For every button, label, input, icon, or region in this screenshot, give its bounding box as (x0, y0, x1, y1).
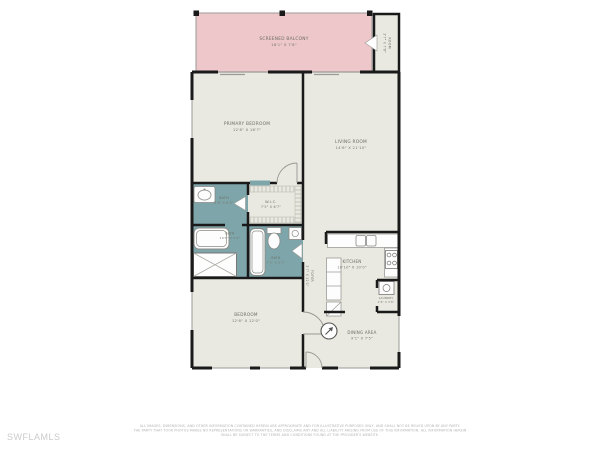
closet-shelves (295, 186, 301, 223)
stove-icon (386, 251, 398, 269)
closet-shelves (250, 186, 294, 192)
washer-icon (379, 282, 394, 295)
label-bath-tub-dims: 10'1" X 6'4" (220, 236, 241, 240)
label-foyer-dims: 3'7" X 12'1" (305, 265, 309, 287)
kitchen-counter (328, 234, 399, 248)
label-foyer-name: FOYER (310, 270, 314, 282)
label-bath-primary-name: BATH (219, 196, 229, 200)
bathtub-icon (250, 229, 265, 276)
disclaimer-line3: SHALL BE SUBJECT TO THE TERMS AND CONDIT… (221, 433, 379, 437)
floor-plan-svg: SCREENED BALCONY 18'1" X 7'8" ROOM 3'7" … (0, 0, 600, 449)
label-bath-tub-name: BATH (225, 232, 235, 236)
label-bedroom-dims: 12'6" X 12'0" (232, 318, 260, 323)
label-wic-name: W.I.C. (265, 200, 277, 204)
vanity-sink-icon (194, 187, 215, 203)
entry-marker-icon (321, 323, 337, 339)
disclaimer-line1: ALL IMAGES, DIMENSIONS, AND OTHER INFORM… (140, 424, 461, 428)
label-balcony-dims: 18'1" X 7'8" (271, 42, 297, 47)
floor-plan-page: SCREENED BALCONY 18'1" X 7'8" ROOM 3'7" … (0, 0, 600, 449)
closet-shelves (250, 217, 294, 223)
label-kitchen-name: KITCHEN (342, 259, 361, 264)
label-dining-name: DINING AREA (347, 330, 376, 335)
label-bath-guest-name: BATH (271, 256, 281, 260)
label-wic-dims: 7'5" X 6'7" (261, 205, 282, 209)
disclaimer-line2: THE PARTY THAT TOOK PHOTOS MAKES NO REPR… (133, 429, 467, 433)
label-bath-primary-dims: 5'6" X 8'5" (214, 201, 234, 205)
label-bath-guest-dims: 7'5" X 5'5" (267, 261, 286, 265)
label-side-room-dims: 3'7" X 7'8" (383, 33, 387, 53)
label-living-room-dims: 14'6" X 21'10" (335, 145, 366, 150)
label-primary-bedroom-dims: 12'8" X 16'7" (233, 127, 261, 132)
wall-post (194, 11, 200, 17)
wall-post (280, 11, 286, 17)
door-opening (250, 181, 270, 186)
label-bedroom-name: BEDROOM (234, 312, 258, 317)
wall-post (367, 11, 373, 17)
label-side-room-name: ROOM (388, 37, 392, 49)
toilet-icon (267, 228, 281, 250)
shower-icon (194, 253, 237, 277)
label-laundry-dims: 2'6" X 3'8" (378, 300, 395, 304)
label-laundry-name: LAUNDRY (379, 296, 394, 300)
label-dining-dims: 9'1" X 7'5" (351, 337, 373, 341)
mls-watermark: SWFLAMLS (7, 432, 61, 442)
sink-icon (289, 228, 302, 240)
label-kitchen-dims: 10'10" X 10'0" (337, 266, 367, 270)
